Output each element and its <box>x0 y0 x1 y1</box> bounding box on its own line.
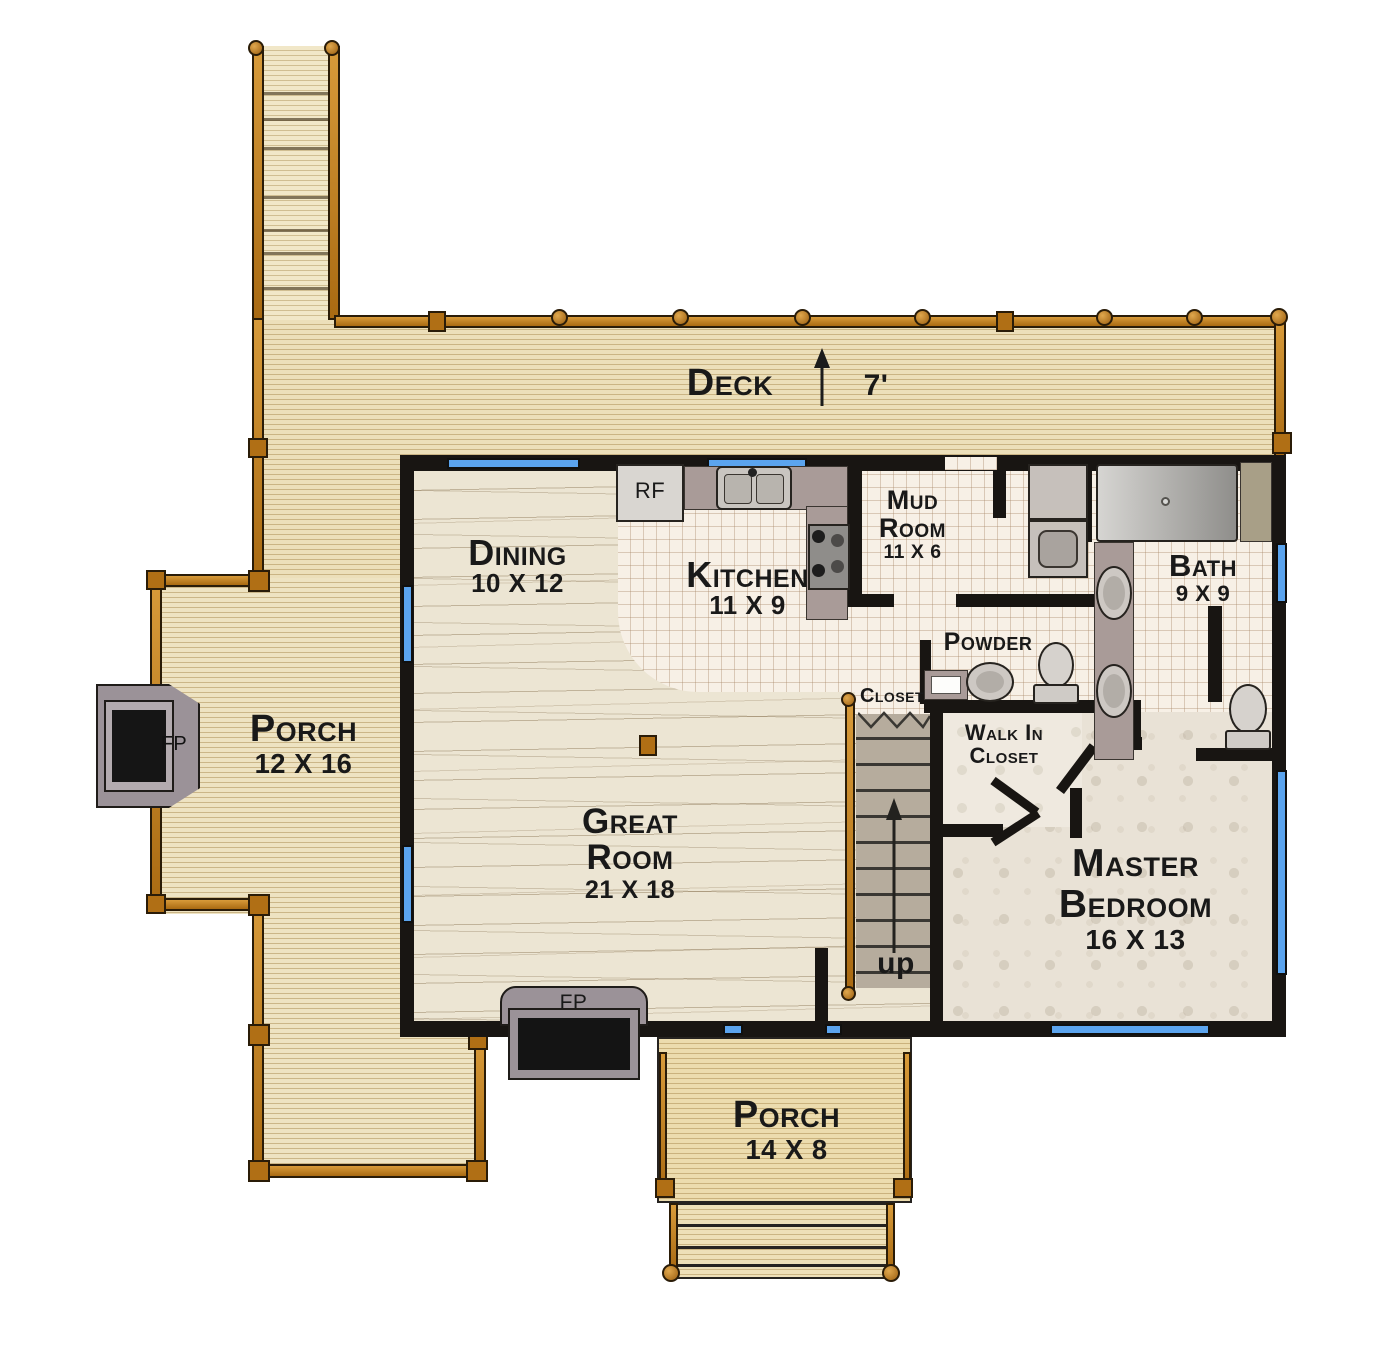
refrigerator: RF <box>616 464 684 522</box>
powder-sink-basin <box>976 671 1004 693</box>
step-line <box>673 1224 891 1227</box>
walk-in-line2: Closet <box>948 745 1060 768</box>
deck-post <box>996 311 1014 332</box>
dining-dims: 10 X 12 <box>430 571 605 598</box>
railing-post-cap <box>882 1264 900 1282</box>
kitchen-name: Kitchen <box>650 556 845 593</box>
wall-bath-toilet-nook <box>1208 606 1222 702</box>
railing-post-cap <box>662 1264 680 1282</box>
window <box>1276 770 1287 975</box>
walk-in-line1: Walk In <box>948 722 1060 745</box>
stairs-up-label: up <box>868 948 924 979</box>
sink-basin <box>756 474 784 504</box>
front-porch-name: Porch <box>704 1096 869 1136</box>
porch-post <box>893 1178 913 1198</box>
bath-label: Bath 9 X 9 <box>1138 550 1268 605</box>
exterior-wall-left <box>400 455 414 1037</box>
walkway-step-line <box>262 287 328 290</box>
railing-post-cap <box>841 986 856 1001</box>
window <box>402 585 413 663</box>
porch-post <box>248 1160 270 1182</box>
railing-post-cap <box>672 309 689 326</box>
porch-post <box>248 894 270 916</box>
faucet <box>748 468 757 477</box>
wall-hall <box>848 594 894 607</box>
kitchen-dims: 11 X 9 <box>650 593 845 620</box>
deck-name: Deck <box>687 362 773 404</box>
walkway-step-line <box>262 118 328 121</box>
railing-post-cap <box>841 692 856 707</box>
wall-stairs-bedroom <box>930 700 943 1021</box>
porch-post <box>466 1160 488 1182</box>
powder-vanity-top <box>931 676 961 694</box>
porch-post <box>248 1024 270 1046</box>
great-room-dims: 21 X 18 <box>560 877 700 903</box>
walkway-railing-right <box>328 46 340 320</box>
window <box>723 1024 743 1035</box>
porch-steps <box>671 1203 893 1279</box>
wall-walkin-right <box>1070 788 1082 838</box>
toilet-bowl <box>1229 684 1267 734</box>
deck-floor-left-wing <box>258 320 400 580</box>
closet-rod-symbol <box>858 708 930 734</box>
tub-drain <box>1161 497 1170 506</box>
deck-width-arrow-icon <box>808 348 836 410</box>
dining-name: Dining <box>430 534 605 571</box>
bath-dims: 9 X 9 <box>1138 582 1268 605</box>
mud-room-name-line1: Mud <box>860 486 965 514</box>
refrigerator-label: RF <box>618 480 682 503</box>
porch-fireplace-label: FP <box>152 734 196 755</box>
railing-post-cap <box>248 40 264 56</box>
floor-plan: Deck 7' Porch 12 X 16 Porch 14 X 8 <box>0 0 1400 1345</box>
toilet-tank <box>1225 730 1271 750</box>
porch-post <box>248 570 270 592</box>
porch-post <box>146 894 166 914</box>
mud-room-label: Mud Room 11 X 6 <box>860 486 965 562</box>
kitchen-label: Kitchen 11 X 9 <box>650 556 845 620</box>
railing-post-cap <box>1270 308 1288 326</box>
step-railing <box>669 1203 678 1271</box>
side-porch-name: Porch <box>226 710 381 750</box>
bath-shelf <box>1240 462 1272 542</box>
deck-depth-label: 7' <box>846 370 906 401</box>
great-room-line2: Room <box>560 840 700 876</box>
stairs-up-arrow-icon <box>878 798 910 958</box>
railing-post-cap <box>1096 309 1113 326</box>
walkway-railing-left <box>252 46 264 320</box>
walk-in-closet-label: Walk In Closet <box>948 722 1060 768</box>
front-porch-dims: 14 X 8 <box>704 1136 869 1164</box>
porch-post <box>655 1178 675 1198</box>
porch-railing <box>150 574 264 587</box>
walkway-step-line <box>262 92 328 95</box>
structural-post <box>639 735 657 756</box>
step-line <box>673 1246 891 1249</box>
mud-room-dims: 11 X 6 <box>860 542 965 562</box>
walkway-step-line <box>262 196 328 199</box>
great-room-firebox <box>518 1018 630 1070</box>
deck-label: Deck <box>650 364 810 404</box>
walkway-step-line <box>262 252 328 255</box>
window <box>1276 543 1287 603</box>
master-line2: Bedroom <box>1018 885 1253 926</box>
window <box>825 1024 842 1035</box>
window <box>1050 1024 1210 1035</box>
railing-post-cap <box>324 40 340 56</box>
window <box>402 845 413 923</box>
mud-room-name-line2: Room <box>860 514 965 542</box>
stair-railing <box>845 698 855 990</box>
step-railing <box>886 1203 895 1271</box>
railing-post-cap <box>1186 309 1203 326</box>
toilet-tank <box>1033 684 1079 704</box>
walkway-step-line <box>262 147 328 150</box>
walkway-step-line <box>262 229 328 232</box>
great-room-label: Great Room 21 X 18 <box>560 804 700 903</box>
wall-mudroom-laundry <box>993 462 1006 518</box>
window <box>447 458 580 469</box>
dining-label: Dining 10 X 12 <box>430 534 605 598</box>
deck-post <box>1272 432 1292 454</box>
porch-railing <box>659 1052 667 1198</box>
closet-label: Closet <box>855 686 929 707</box>
porch-railing <box>252 1164 488 1178</box>
washer <box>1028 464 1088 520</box>
burner <box>812 530 825 543</box>
great-room-line1: Great <box>560 804 700 840</box>
sink-basin <box>724 474 752 504</box>
porch-post <box>146 570 166 590</box>
wall-hall <box>956 594 1094 607</box>
deck-door-opening <box>945 457 997 470</box>
front-porch-label: Porch 14 X 8 <box>704 1096 869 1164</box>
step-line <box>673 1264 891 1267</box>
bath-name: Bath <box>1138 550 1268 582</box>
side-porch-label: Porch 12 X 16 <box>226 710 381 778</box>
powder-label: Powder <box>928 629 1048 655</box>
side-porch-dims: 12 X 16 <box>226 750 381 778</box>
porch-railing <box>474 1038 486 1178</box>
burner <box>831 534 844 547</box>
deck-post <box>428 311 446 332</box>
deck-post <box>248 438 268 458</box>
master-bedroom-label: Master Bedroom 16 X 13 <box>1018 844 1253 954</box>
railing-post-cap <box>794 309 811 326</box>
railing-post-cap <box>914 309 931 326</box>
dryer-door <box>1038 530 1078 568</box>
railing-post-cap <box>551 309 568 326</box>
porch-railing <box>903 1052 911 1198</box>
wall-stair-landing <box>815 948 828 1023</box>
master-dims: 16 X 13 <box>1018 925 1253 954</box>
deck-walkway <box>260 46 330 320</box>
vanity-sink-basin <box>1103 674 1125 708</box>
vanity-sink-basin <box>1103 576 1125 610</box>
master-line1: Master <box>1018 844 1253 885</box>
